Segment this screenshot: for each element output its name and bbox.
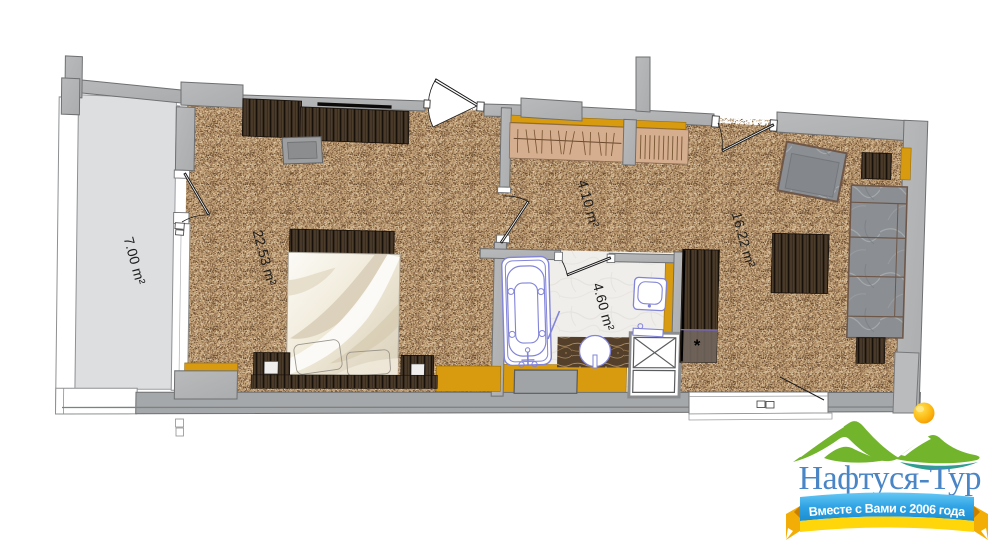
svg-text:*: *	[694, 336, 701, 355]
svg-text:Нафтуся-Тур: Нафтуся-Тур	[799, 460, 982, 497]
